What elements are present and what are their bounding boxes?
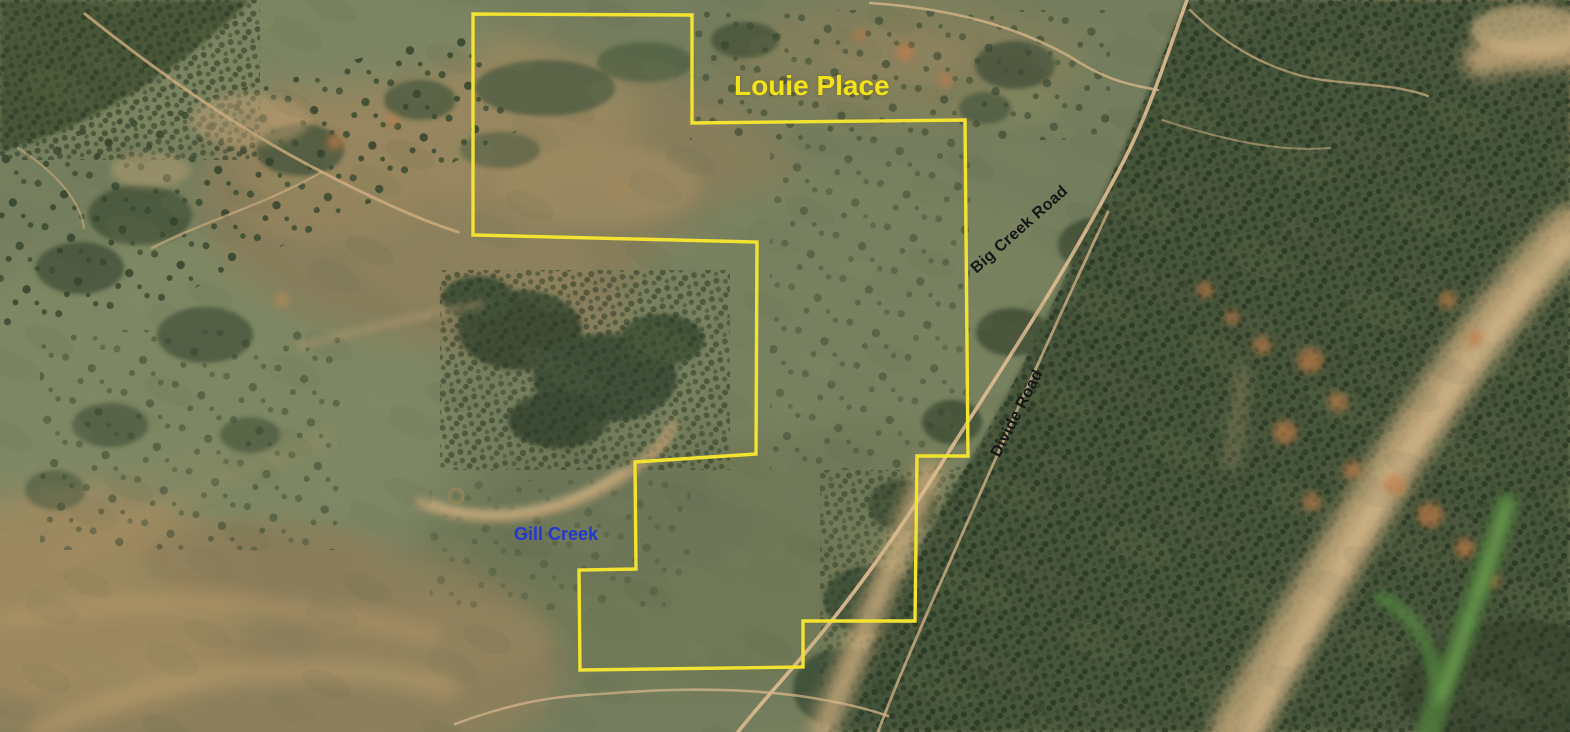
creek-label: Gill Creek [514, 525, 598, 543]
property-label: Louie Place [734, 72, 890, 100]
satellite-map[interactable]: Louie Place Big Creek Road Divide Road G… [0, 0, 1570, 732]
satellite-imagery [0, 0, 1570, 732]
terrain-art [0, 0, 1570, 732]
